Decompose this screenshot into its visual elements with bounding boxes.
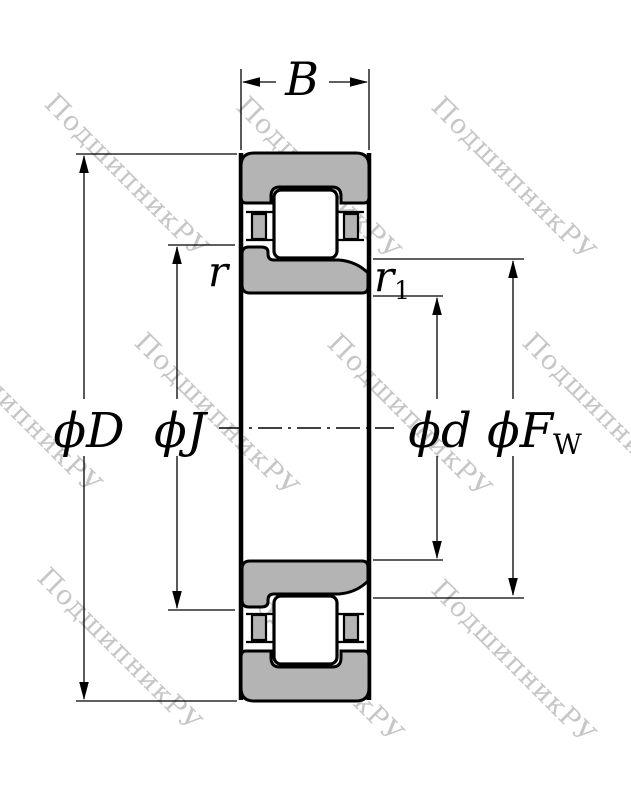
arrow-D-down	[79, 682, 89, 700]
label-bore-diameter-phid: ϕd	[408, 403, 471, 459]
roller-bottom	[274, 596, 337, 664]
arrow-Fw-down	[508, 578, 518, 596]
label-r1-subscript: 1	[394, 276, 410, 305]
cage-prong-top-left	[252, 214, 266, 239]
label-chamfer-r1: r1	[374, 252, 410, 305]
cage-prong-top-right	[344, 214, 358, 239]
label-chamfer-r: r	[208, 247, 231, 296]
bearing-cross-section-diagram: ПодшипникРУ ПодшипникРУ ПодшипникРУ Подш…	[0, 0, 631, 792]
bearing-drawing-page: ПодшипникРУ ПодшипникРУ ПодшипникРУ Подш…	[0, 0, 631, 792]
arrow-d-up	[432, 297, 442, 315]
arrow-Fw-up	[508, 260, 518, 278]
arrow-d-down	[432, 541, 442, 559]
label-width-B: B	[284, 52, 319, 106]
watermark-text: ПодшипникРУ	[425, 574, 602, 751]
roller-top	[274, 190, 337, 258]
watermark-text: ПодшипникРУ	[425, 91, 602, 268]
arrow-J-down	[172, 591, 182, 609]
label-phiF-main: ϕF	[487, 403, 555, 459]
watermark-text: ПодшипникРУ	[38, 88, 215, 265]
cage-prong-bottom-left	[252, 615, 266, 640]
watermark-text: ПодшипникРУ	[31, 562, 208, 739]
label-raceway-diameter-phiFw: ϕFW	[487, 403, 582, 461]
arrow-B-left	[242, 77, 260, 87]
label-phiF-subscript-W: W	[553, 428, 582, 461]
arrow-B-right	[350, 77, 368, 87]
label-rib-diameter-phiJ: ϕJ	[154, 403, 209, 459]
label-outer-diameter-phiD: ϕD	[53, 403, 124, 459]
cage-prong-bottom-right	[344, 615, 358, 640]
